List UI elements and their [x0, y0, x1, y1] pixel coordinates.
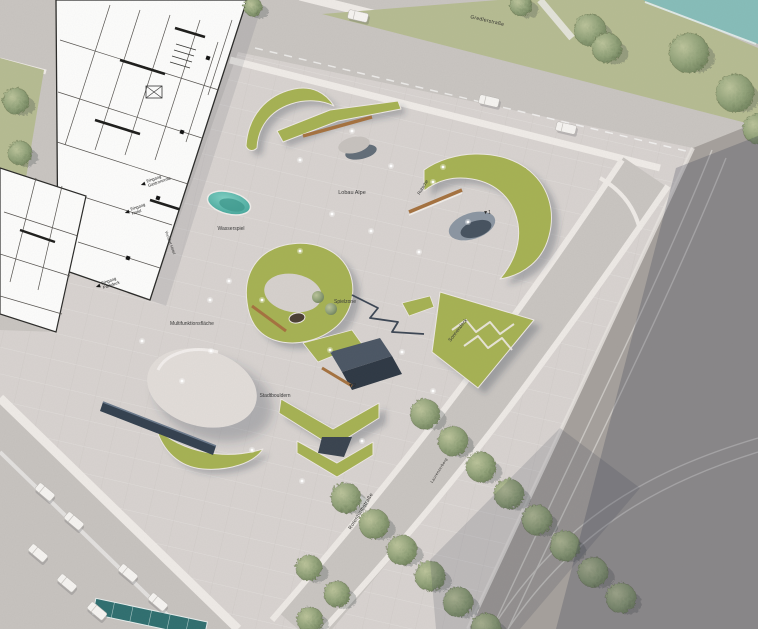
lamp-icon — [329, 211, 335, 217]
lamp-icon — [430, 179, 436, 185]
lamp-icon — [368, 228, 374, 234]
lamp-icon — [299, 478, 305, 484]
lamp-icon — [207, 297, 213, 303]
lamp-icon — [388, 163, 394, 169]
plaza-label: Wasserspiel — [217, 226, 244, 232]
plaza-label: Stadtbouldern — [259, 393, 290, 399]
lamp-icon — [465, 219, 471, 225]
lamp-icon — [226, 278, 232, 284]
lamp-icon — [297, 248, 303, 254]
lamp-icon — [349, 128, 355, 134]
lamp-icon — [208, 348, 214, 354]
lamp-icon — [259, 297, 265, 303]
level-marker: ▼2 — [348, 383, 356, 389]
lamp-icon — [399, 349, 405, 355]
lamp-icon — [297, 157, 303, 163]
lamp-icon — [430, 388, 436, 394]
lamp-icon — [440, 164, 446, 170]
level-marker: ▼1 — [483, 210, 491, 216]
masterplan-canvas: Gredlerstraße Rotenturmstraße Laurenzerb… — [0, 0, 758, 629]
lamp-icon — [359, 438, 365, 444]
plaza-label: Multifunktionsfläche — [170, 321, 214, 327]
lamp-icon — [139, 338, 145, 344]
lamp-icon — [249, 447, 255, 453]
plaza-label: Spielzone — [334, 299, 356, 305]
lamp-icon — [416, 249, 422, 255]
paper-grain — [0, 0, 758, 629]
plaza-label: Lobau Alpe — [338, 190, 366, 196]
lamp-icon — [179, 378, 185, 384]
site-plan: Gredlerstraße Rotenturmstraße Laurenzerb… — [0, 0, 758, 629]
lamp-icon — [327, 347, 333, 353]
